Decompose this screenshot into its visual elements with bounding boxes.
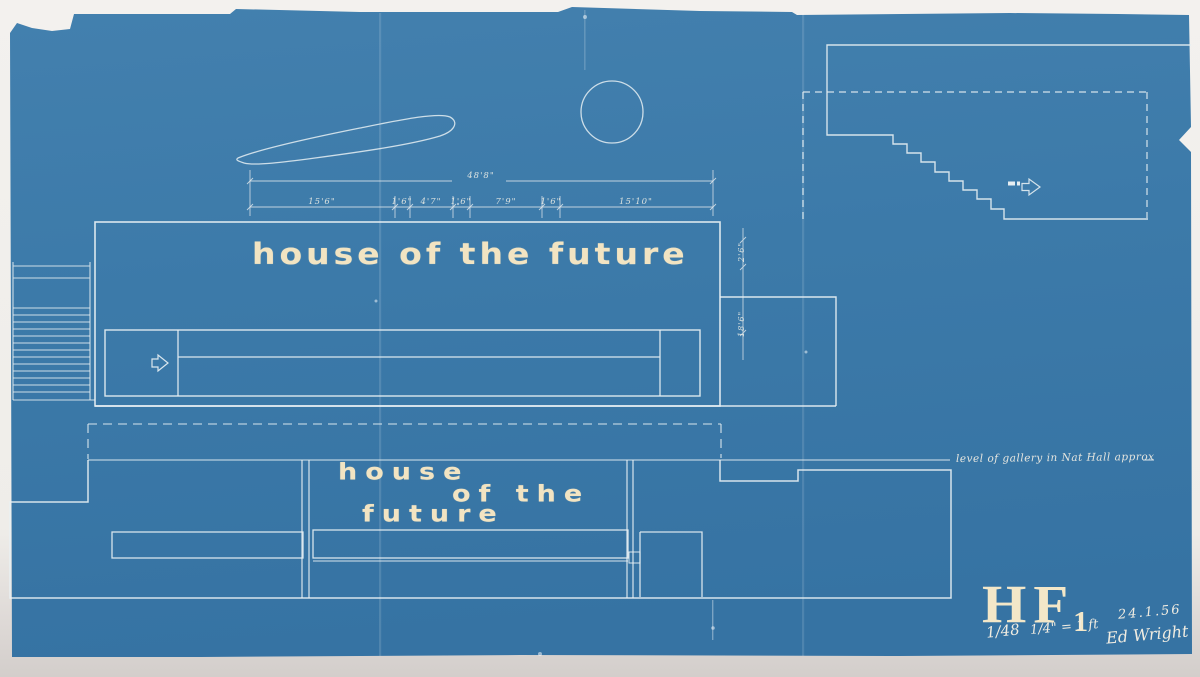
dimension-segment-label: 1'6" (391, 197, 412, 207)
vertical-dimension-upper: 2'6" (737, 242, 746, 262)
vertical-dimension-lower: 18'6" (737, 311, 746, 337)
blueprint-scan: house of the future house of the future … (0, 0, 1200, 677)
dimension-segment-label: 15'10" (619, 197, 653, 207)
overall-dimension-label: 48'8" (467, 171, 494, 181)
blueprint-sheet (10, 7, 1192, 657)
dimension-segment-label: 1'6" (540, 197, 561, 207)
dimension-segment-label: 1'6" (450, 197, 471, 207)
gallery-level-note: level of gallery in Nat Hall approx (956, 451, 1155, 465)
title-lower-line1: house (338, 459, 469, 485)
dimension-segment-label: 7'9" (495, 197, 516, 207)
title-house-of-the-future-upper: house of the future (252, 236, 689, 271)
title-lower-line3: future (362, 501, 505, 527)
scale-ratio: 1/48 (985, 620, 1020, 641)
dimension-segment-label: 15'6" (308, 197, 335, 207)
dimension-segment-label: 4'7" (420, 197, 441, 207)
